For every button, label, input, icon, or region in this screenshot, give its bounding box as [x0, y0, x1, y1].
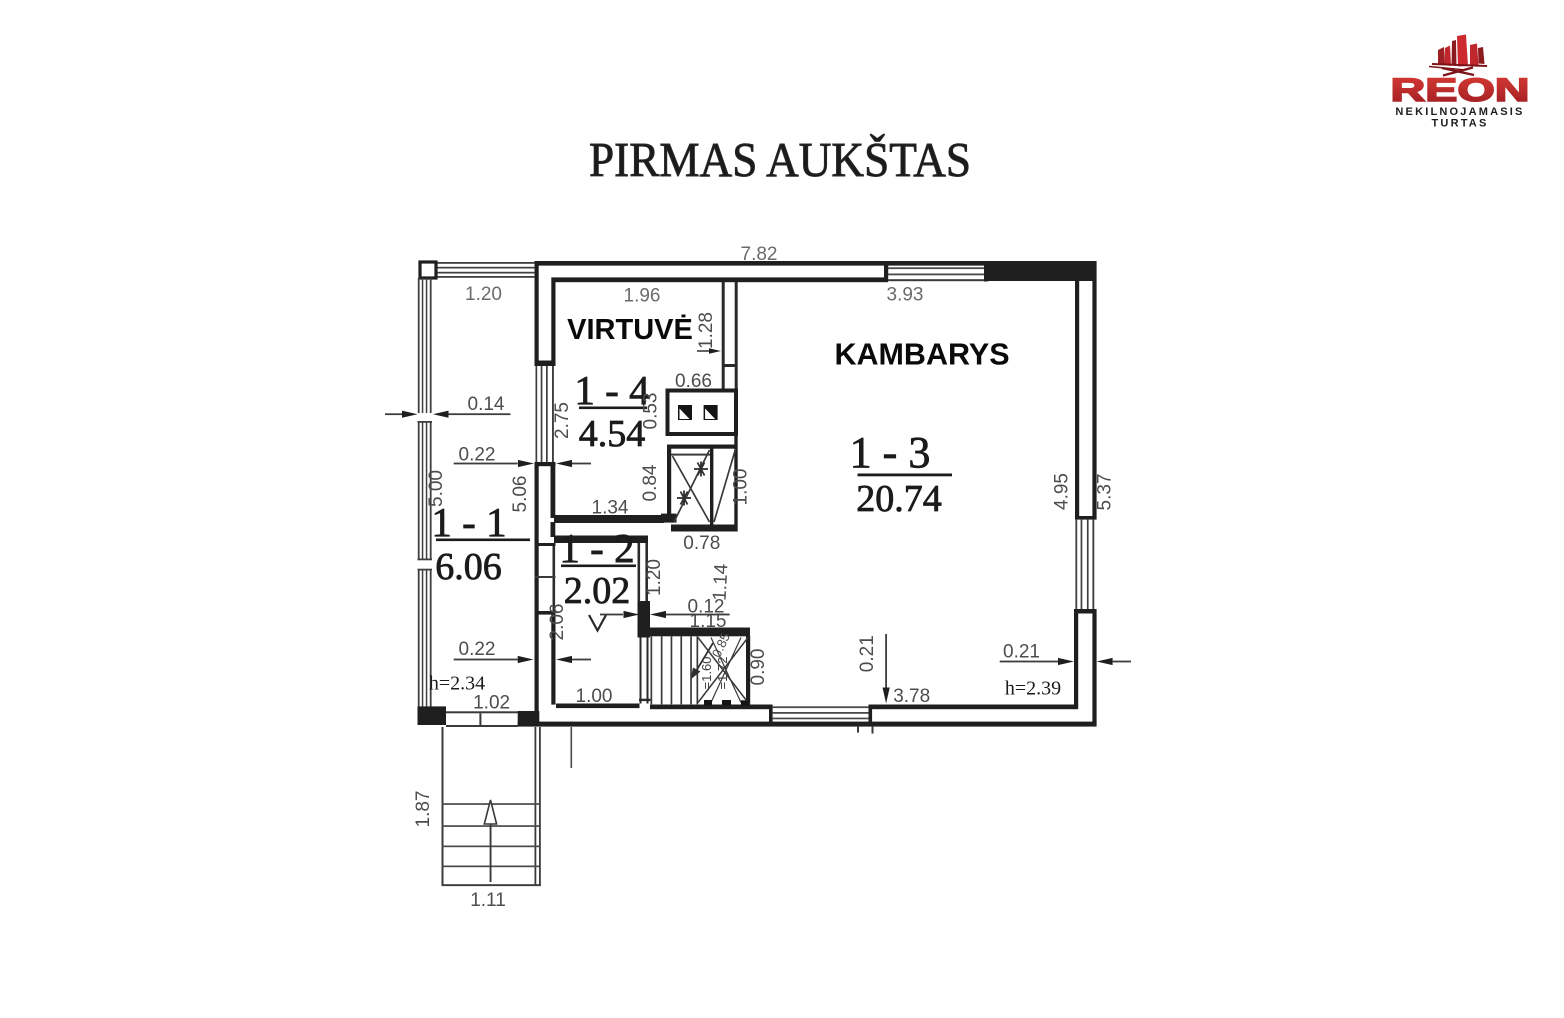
svg-text:1.20: 1.20: [644, 559, 665, 596]
svg-text:0.21: 0.21: [1003, 642, 1040, 663]
svg-text:h=2.39: h=2.39: [1005, 678, 1061, 700]
svg-text:4.95: 4.95: [1052, 473, 1073, 510]
svg-text:1.02: 1.02: [473, 693, 510, 714]
svg-text:0.78: 0.78: [683, 533, 720, 554]
svg-text:4.54: 4.54: [579, 413, 646, 455]
svg-text:0.22: 0.22: [459, 639, 496, 660]
svg-text:NEKILNOJAMASIS: NEKILNOJAMASIS: [1395, 106, 1524, 118]
svg-text:7.82: 7.82: [741, 244, 778, 265]
svg-text:0.22: 0.22: [459, 445, 496, 466]
svg-text:KAMBARYS: KAMBARYS: [834, 338, 1009, 372]
svg-text:h=2.34: h=2.34: [429, 673, 485, 695]
svg-text:1.34: 1.34: [592, 498, 629, 519]
svg-text:5.00: 5.00: [426, 470, 447, 507]
svg-text:5.06: 5.06: [510, 476, 531, 513]
svg-text:1 - 4: 1 - 4: [574, 367, 649, 413]
svg-text:1.00: 1.00: [730, 469, 751, 506]
svg-text:1.11: 1.11: [470, 890, 506, 911]
svg-text:3.78: 3.78: [893, 686, 930, 707]
svg-text:0.84: 0.84: [640, 464, 661, 501]
svg-text:0.14: 0.14: [468, 394, 505, 415]
svg-text:20.74: 20.74: [856, 478, 942, 520]
svg-text:=1.60: =1.60: [699, 657, 714, 690]
svg-text:PIRMAS AUKŠTAS: PIRMAS AUKŠTAS: [589, 132, 971, 187]
svg-text:REON: REON: [1391, 72, 1530, 108]
svg-text:0.21: 0.21: [857, 635, 878, 672]
svg-text:0.66: 0.66: [675, 371, 712, 392]
svg-text:0.90: 0.90: [748, 649, 769, 686]
svg-text:1.00: 1.00: [576, 686, 613, 707]
svg-text:1.87: 1.87: [413, 791, 434, 828]
svg-text:5.37: 5.37: [1095, 474, 1116, 511]
svg-text:1.96: 1.96: [624, 286, 661, 307]
svg-text:2.02: 2.02: [564, 570, 631, 612]
svg-text:1.20: 1.20: [465, 284, 502, 305]
svg-text:3.93: 3.93: [887, 285, 924, 306]
svg-text:1 - 2: 1 - 2: [559, 525, 634, 571]
svg-text:=1.72: =1.72: [715, 657, 730, 690]
svg-text:1.14: 1.14: [710, 563, 733, 601]
svg-text:1.28: 1.28: [696, 312, 717, 349]
svg-text:VIRTUVĖ: VIRTUVĖ: [567, 314, 693, 346]
svg-text:2.06: 2.06: [547, 604, 568, 641]
svg-text:0.53: 0.53: [641, 393, 662, 430]
svg-text:2.75: 2.75: [552, 402, 573, 439]
svg-text:1 - 3: 1 - 3: [850, 428, 931, 477]
svg-text:TURTAS: TURTAS: [1432, 118, 1489, 130]
svg-text:6.06: 6.06: [435, 546, 502, 588]
